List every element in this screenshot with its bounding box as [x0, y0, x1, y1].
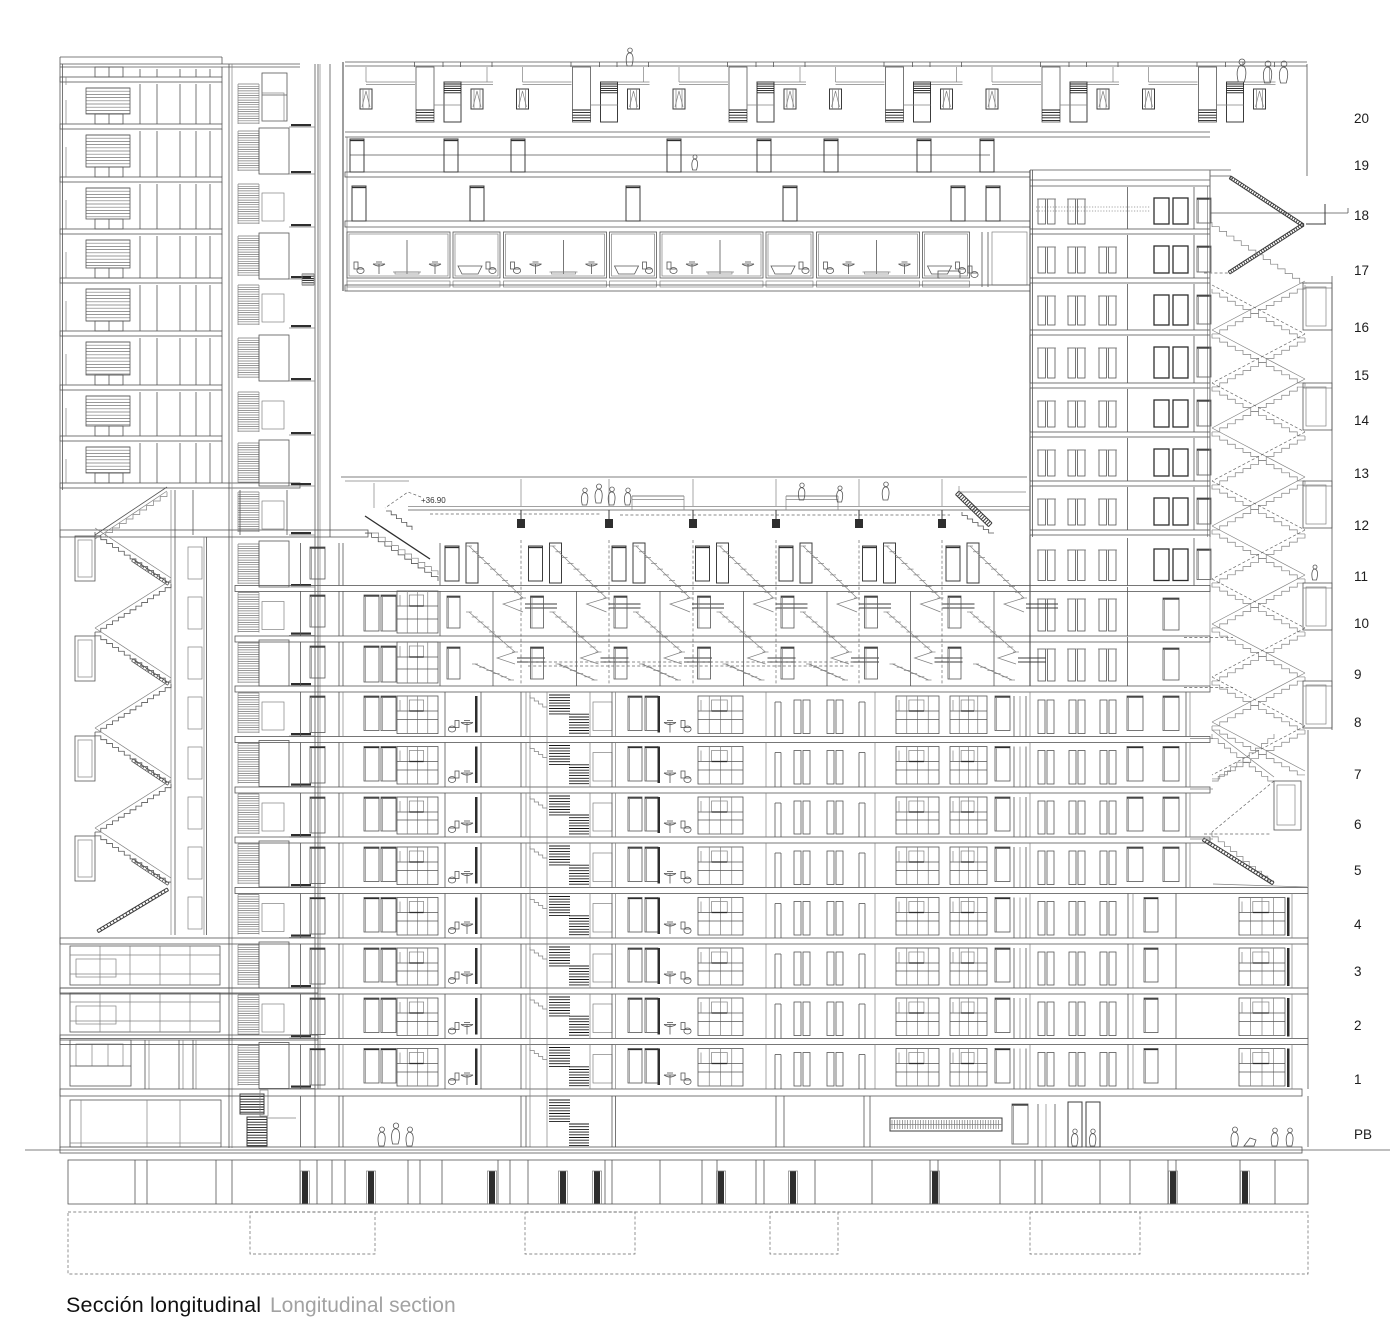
svg-text:20: 20 — [1354, 111, 1369, 126]
svg-text:6: 6 — [1354, 817, 1362, 832]
svg-text:Longitudinal section: Longitudinal section — [270, 1294, 456, 1317]
svg-text:7: 7 — [1354, 767, 1362, 782]
svg-text:+36.90: +36.90 — [421, 496, 446, 505]
svg-text:19: 19 — [1354, 158, 1369, 173]
svg-text:16: 16 — [1354, 320, 1369, 335]
svg-text:10: 10 — [1354, 616, 1369, 631]
svg-text:PB: PB — [1354, 1127, 1372, 1142]
svg-text:Sección longitudinal: Sección longitudinal — [66, 1293, 261, 1317]
svg-text:4: 4 — [1354, 917, 1362, 932]
svg-text:13: 13 — [1354, 466, 1369, 481]
svg-text:1: 1 — [1354, 1072, 1362, 1087]
svg-text:14: 14 — [1354, 413, 1370, 428]
svg-text:17: 17 — [1354, 263, 1369, 278]
svg-text:12: 12 — [1354, 518, 1369, 533]
svg-text:11: 11 — [1354, 569, 1368, 584]
svg-text:5: 5 — [1354, 863, 1362, 878]
svg-text:18: 18 — [1354, 208, 1369, 223]
svg-text:8: 8 — [1354, 715, 1362, 730]
svg-text:15: 15 — [1354, 368, 1369, 383]
svg-text:3: 3 — [1354, 964, 1362, 979]
svg-text:2: 2 — [1354, 1018, 1362, 1033]
svg-text:9: 9 — [1354, 667, 1362, 682]
